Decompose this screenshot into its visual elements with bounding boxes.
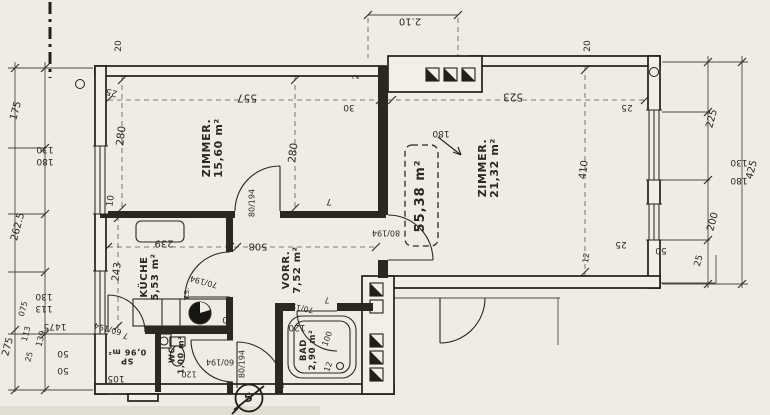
label-ts: T.S. <box>184 288 192 300</box>
dim-130-winright: 130 <box>730 156 747 166</box>
door-size-wc: 60/194 <box>206 357 234 366</box>
door-size-zimmer1: 80/194 <box>249 189 258 217</box>
room-label-sp: SP 0,96 m² <box>108 347 147 364</box>
dim-113-winleft2: 113 <box>35 302 52 312</box>
dim-180-winleft: 180 <box>36 155 53 165</box>
dim-243: 243 <box>111 262 124 282</box>
dim-50-a: 50 <box>57 347 68 357</box>
dim-239: 239 <box>154 237 173 248</box>
area-total-label: 55,38 m² <box>414 160 428 233</box>
dim-120-vorr: 120 <box>288 321 305 331</box>
room-label-zimmer-1: ZIMMER. 15,60 m² <box>201 118 225 178</box>
scan-shadow <box>0 406 320 415</box>
dim-280-left: 280 <box>115 125 129 146</box>
room-label-bad: BAD 2,90 m² <box>300 330 318 371</box>
dim-12-z2: 12 <box>582 252 592 263</box>
dim-7-bad: 7 <box>324 295 329 304</box>
dim-120-wc: 120 <box>181 369 196 378</box>
room-label-kueche: KÜCHE 5,53 m² <box>140 253 162 300</box>
dim-50-b: 50 <box>57 364 68 374</box>
dim-508: 508 <box>248 240 267 251</box>
room-label-zimmer-2: ZIMMER. 21,32 m² <box>477 138 501 198</box>
dim-1475: 1475 <box>44 320 67 330</box>
dim-25-topleft: 25 <box>105 85 119 97</box>
door-size-entry: 80/194 <box>239 350 248 378</box>
dim-105: 105 <box>107 372 124 382</box>
door-size-zimmer2: 80/194 <box>372 228 400 237</box>
room-label-vorraum: VORR. 7,52 m² <box>282 246 304 293</box>
dim-20-left: 20 <box>115 40 125 51</box>
dim-25-topright: 25 <box>621 101 632 111</box>
dim-180-arrow: 180 <box>432 127 449 137</box>
dim-2: 2 <box>353 74 362 79</box>
dim-50-z2: 50 <box>655 244 666 254</box>
dim-10: 10 <box>106 195 117 208</box>
dim-20-right: 20 <box>584 40 594 51</box>
dim-30: 30 <box>343 101 354 111</box>
dim-7-z1: 7 <box>326 195 332 205</box>
dim-210-top: 2.10 <box>399 15 421 26</box>
floor-plan-scan: ZIMMER. 15,60 m²ZIMMER. 21,32 m²KÜCHE 5,… <box>0 0 770 415</box>
dim-130-winleft: 130 <box>36 143 53 153</box>
dim-557: 557 <box>237 91 257 102</box>
dim-280-right: 280 <box>287 142 301 163</box>
dim-60-counter: 60 <box>222 313 233 323</box>
dim-25-z2: 25 <box>615 238 626 248</box>
dim-523: 523 <box>503 90 523 101</box>
dim-130-winleft2: 130 <box>35 290 52 300</box>
dim-410: 410 <box>578 160 591 180</box>
